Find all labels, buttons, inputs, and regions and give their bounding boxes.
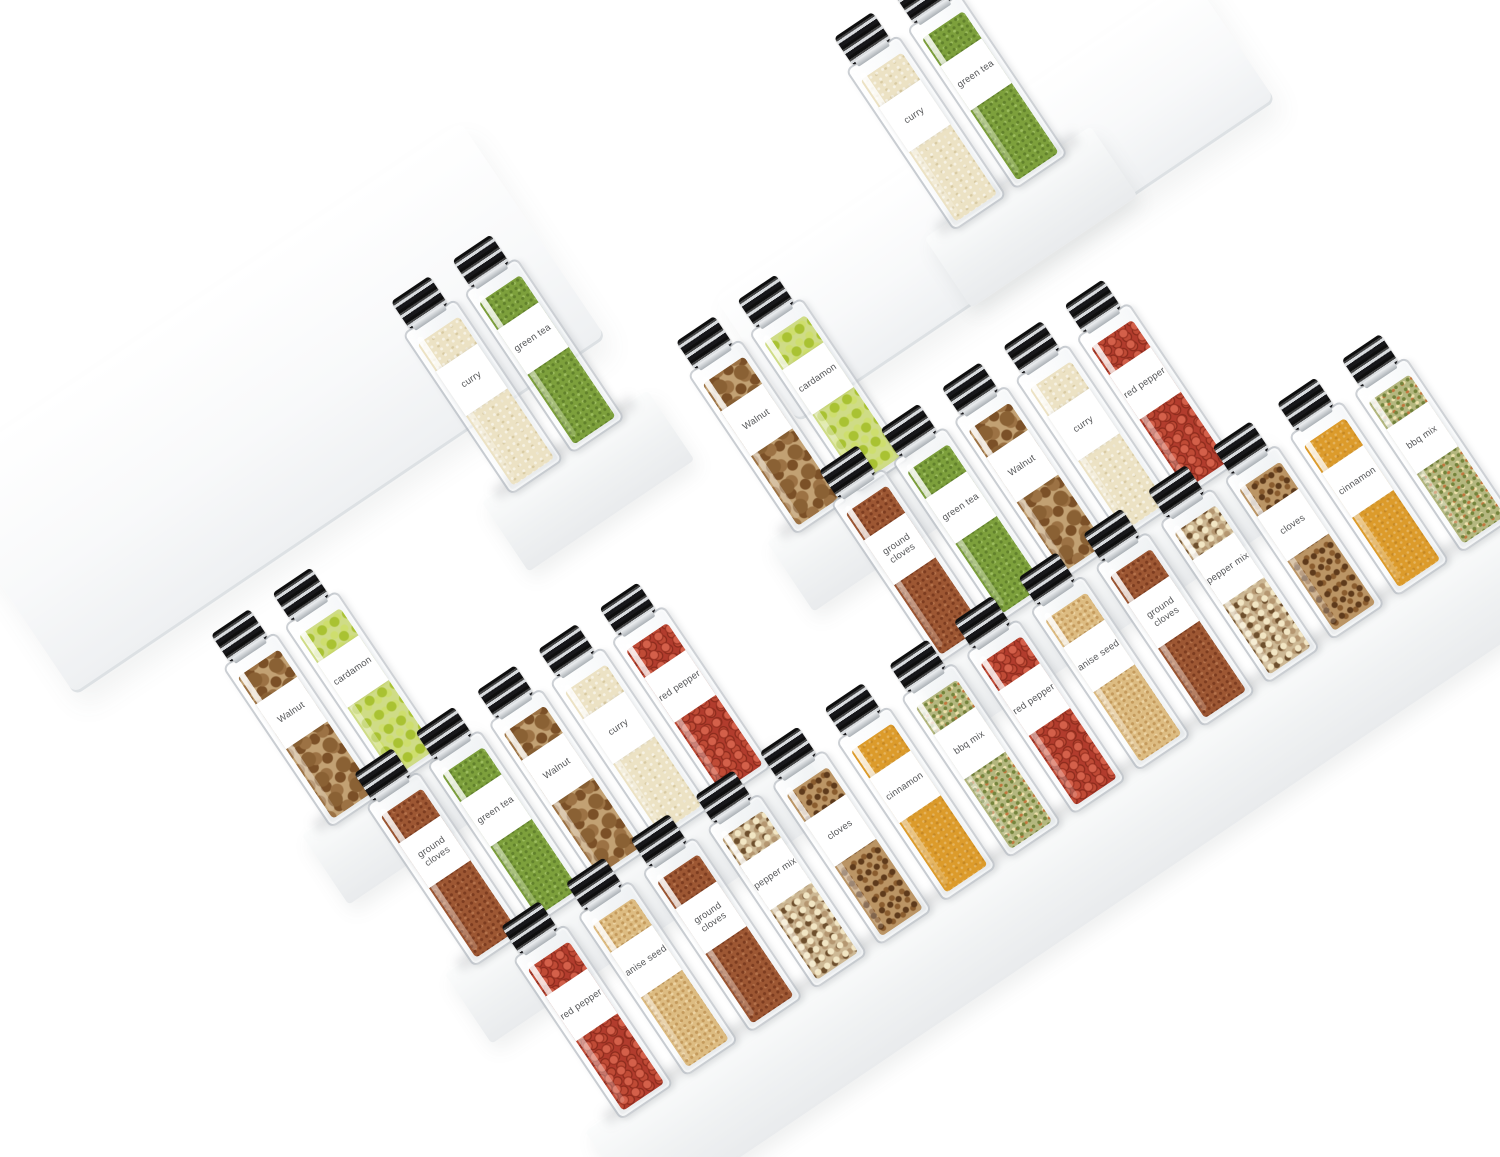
scene: currygreen teacurrygreen teaWalnutcardam…	[0, 0, 1500, 1157]
jar-row-upper-left-pair: currygreen tea	[402, 257, 625, 496]
